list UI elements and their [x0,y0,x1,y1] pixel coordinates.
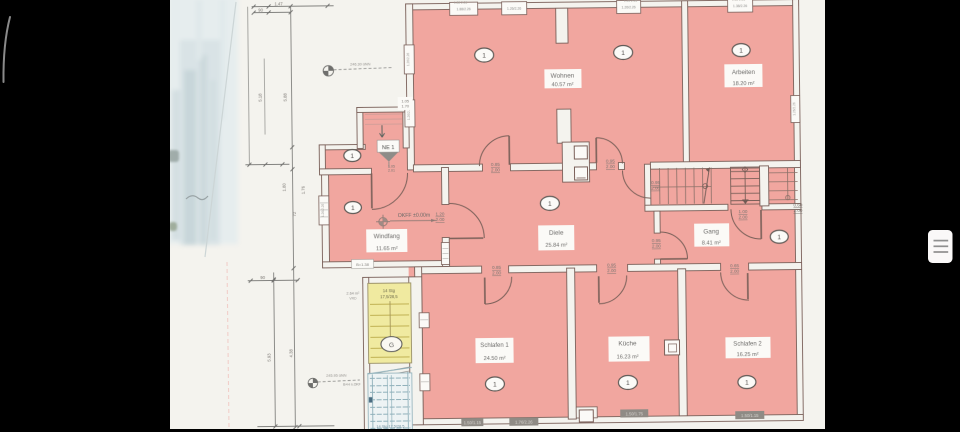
svg-text:5.88: 5.88 [283,93,288,102]
svg-text:1: 1 [548,201,552,208]
svg-text:1: 1 [350,153,354,160]
svg-text:0.95: 0.95 [652,238,661,243]
svg-text:8.41 m²: 8.41 m² [702,240,721,246]
svg-text:Diele: Diele [549,230,564,237]
svg-text:1.26/2.26: 1.26/2.26 [507,7,521,11]
svg-text:1.80: 1.80 [282,183,287,192]
svg-text:1.00: 1.00 [738,209,747,214]
svg-text:246.30 üNN: 246.30 üNN [350,62,371,66]
svg-text:0.85: 0.85 [491,162,500,167]
svg-text:16.25 m²: 16.25 m² [737,352,759,358]
svg-text:72: 72 [292,211,297,216]
svg-text:0.85: 0.85 [492,265,501,270]
svg-text:2.00: 2.00 [606,164,615,169]
svg-text:0.65: 0.65 [730,263,739,268]
svg-text:1.26/2.26: 1.26/2.26 [792,102,796,116]
svg-text:1.76/2.26: 1.76/2.26 [515,420,533,425]
svg-text:1: 1 [777,234,781,241]
svg-text:1: 1 [745,379,749,386]
svg-text:5.93: 5.93 [267,353,272,362]
svg-text:40.57 m²: 40.57 m² [551,82,573,88]
svg-text:Schlafen 1: Schlafen 1 [480,343,509,349]
svg-text:1: 1 [626,380,630,387]
svg-text:90: 90 [258,8,263,13]
svg-text:B=1.38: B=1.38 [356,262,370,267]
svg-text:G: G [389,342,394,349]
svg-text:14 Stg 17,5/28,5: 14 Stg 17,5/28,5 [376,424,404,428]
svg-text:2.64 m²: 2.64 m² [346,291,360,295]
svg-text:Schlafen 2: Schlafen 2 [733,341,762,347]
svg-text:1.50/1.15: 1.50/1.15 [741,413,759,418]
svg-text:245.95 üNN: 245.95 üNN [326,374,347,378]
svg-text:2.00: 2.00 [651,186,660,191]
svg-text:2.00: 2.00 [491,167,500,172]
svg-text:1.88 2.26: 1.88 2.26 [454,1,468,5]
svg-text:NE 1: NE 1 [382,145,395,151]
svg-text:Gang: Gang [703,228,719,235]
svg-text:1: 1 [351,205,355,212]
svg-text:1.38 2.26: 1.38 2.26 [732,0,746,2]
svg-text:1.38/2.26: 1.38/2.26 [733,4,747,8]
svg-text:18.20 m²: 18.20 m² [732,81,754,87]
svg-text:5.18: 5.18 [258,93,263,102]
svg-text:1.26/2.26: 1.26/2.26 [321,204,325,218]
svg-text:4.38: 4.38 [289,348,294,357]
svg-text:0.95: 0.95 [606,159,615,164]
svg-text:1.50/1.15: 1.50/1.15 [464,420,482,425]
svg-text:Arbeiten: Arbeiten [732,69,756,76]
svg-text:Windfang: Windfang [374,233,401,240]
svg-text:1: 1 [739,48,743,55]
svg-text:2.00: 2.00 [730,269,739,274]
svg-text:OKFF ±0.00m: OKFF ±0.00m [398,213,431,219]
svg-text:2.00: 2.00 [436,217,445,222]
svg-text:2.00: 2.00 [793,208,802,213]
svg-text:17,5/28,5: 17,5/28,5 [380,294,398,299]
svg-text:Wohnen: Wohnen [551,73,575,80]
svg-text:2.01: 2.01 [388,169,395,173]
svg-text:2.00: 2.00 [607,268,616,273]
svg-text:1.20: 1.20 [435,212,444,217]
svg-text:1.26 2.26: 1.26 2.26 [624,0,638,3]
svg-text:25.84 m²: 25.84 m² [545,243,567,249]
svg-text:1.76: 1.76 [301,185,306,194]
svg-text:11.65 m²: 11.65 m² [376,246,398,252]
svg-text:0.95: 0.95 [651,180,660,185]
svg-text:2.00: 2.00 [492,270,501,275]
svg-text:1.70: 1.70 [402,104,409,108]
svg-text:B+H n.OKF: B+H n.OKF [343,382,360,386]
svg-text:1.26/2.26: 1.26/2.26 [622,5,636,9]
svg-text:1: 1 [493,381,497,388]
svg-text:1: 1 [482,52,486,59]
svg-text:14 Stg: 14 Stg [383,288,396,293]
svg-text:1.50/1.75: 1.50/1.75 [626,411,644,416]
svg-text:0.95: 0.95 [607,263,616,268]
svg-text:0.60: 0.60 [793,202,802,207]
svg-text:VRD: VRD [349,297,357,301]
svg-text:1.47: 1.47 [274,1,283,6]
svg-text:90: 90 [260,275,265,280]
svg-text:16.23 m²: 16.23 m² [617,354,639,360]
svg-text:1.05: 1.05 [401,99,408,103]
svg-text:24.50 m²: 24.50 m² [484,356,506,362]
svg-text:2.00: 2.00 [739,215,748,220]
svg-text:1.26/2.26: 1.26/2.26 [406,53,410,67]
svg-text:1: 1 [621,50,625,57]
svg-text:Küche: Küche [618,340,637,347]
svg-text:2.00: 2.00 [652,244,661,249]
svg-text:1.88/2.26: 1.88/2.26 [457,7,471,11]
